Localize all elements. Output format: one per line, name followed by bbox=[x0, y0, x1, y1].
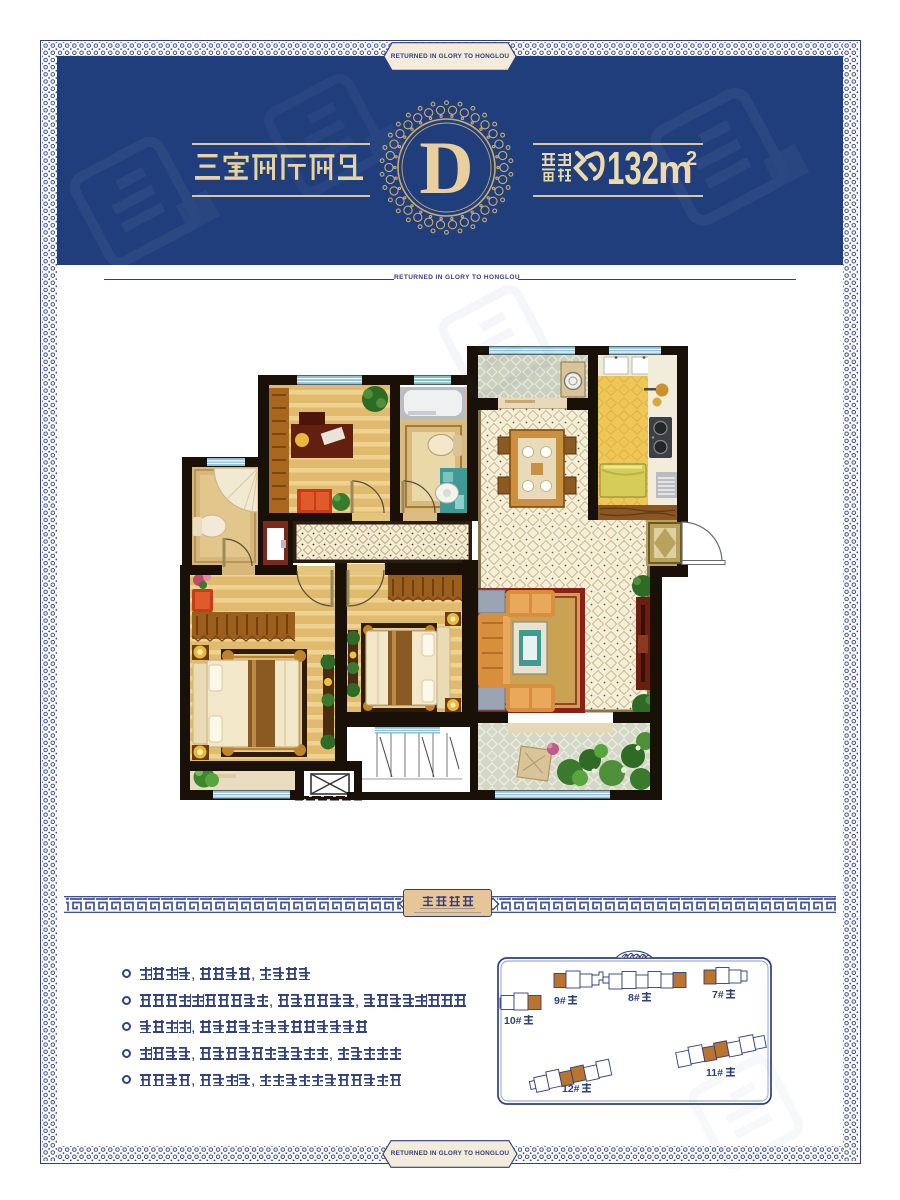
svg-text:12#: 12# bbox=[562, 1083, 580, 1095]
svg-text:8#: 8# bbox=[628, 992, 640, 1004]
svg-text:7#: 7# bbox=[712, 989, 724, 1001]
svg-text:D: D bbox=[419, 127, 473, 210]
svg-text:9#: 9# bbox=[554, 995, 566, 1007]
svg-text:10#: 10# bbox=[504, 1015, 522, 1027]
